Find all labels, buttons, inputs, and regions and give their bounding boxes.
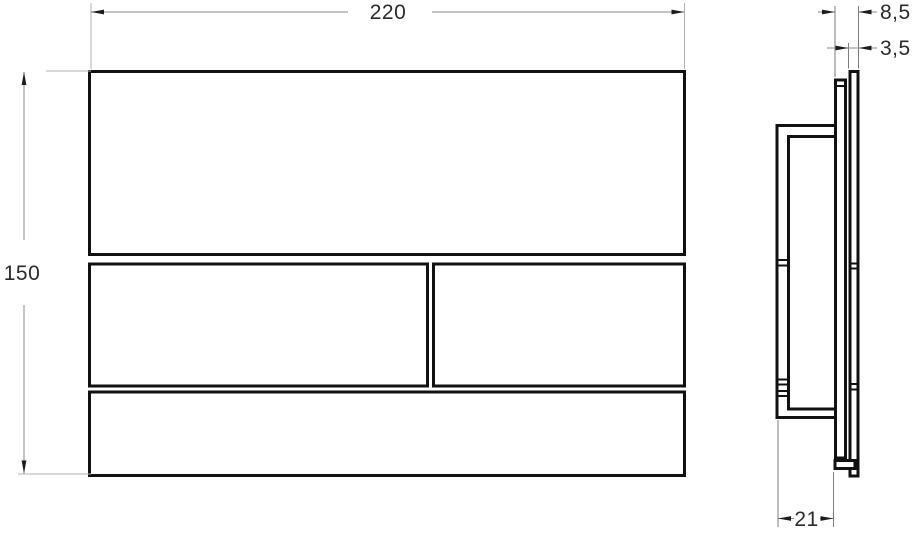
total-depth-dimension-label: 8,5 xyxy=(880,1,911,24)
plate-thickness-dimension: 3,5 xyxy=(827,37,911,69)
flush-button-large xyxy=(90,264,428,386)
width-dimension-label: 220 xyxy=(370,1,407,24)
arrowhead xyxy=(22,72,27,85)
arrowhead xyxy=(22,461,27,474)
actuator-carrier-profile xyxy=(836,80,846,458)
flush-button-small xyxy=(434,264,685,386)
side-view xyxy=(777,72,859,477)
plate-profile xyxy=(850,72,858,477)
actuator-foot-profile xyxy=(835,461,855,469)
plate-thickness-dimension-label: 3,5 xyxy=(880,37,911,60)
height-dimension-label: 150 xyxy=(4,262,41,285)
arrowhead xyxy=(859,46,872,51)
plate-top-panel xyxy=(90,72,685,255)
arrowhead xyxy=(91,10,104,15)
arrowhead xyxy=(672,10,685,15)
arrowhead xyxy=(859,10,872,15)
frame-depth-dimension: 21 xyxy=(778,420,834,531)
height-dimension: 150 xyxy=(4,71,91,474)
mounting-frame-profile xyxy=(777,126,837,418)
arrowhead xyxy=(821,516,834,521)
width-dimension: 220 xyxy=(91,1,685,69)
arrowhead xyxy=(778,516,791,521)
arrowhead xyxy=(836,46,849,51)
arrowhead xyxy=(822,10,835,15)
technical-drawing: 220 150 8,5 3,5 21 xyxy=(0,0,917,536)
front-view xyxy=(90,72,685,476)
drawing-canvas: 220 150 8,5 3,5 21 xyxy=(0,0,917,536)
plate-bottom-panel xyxy=(90,392,685,476)
frame-depth-dimension-label: 21 xyxy=(794,508,818,531)
